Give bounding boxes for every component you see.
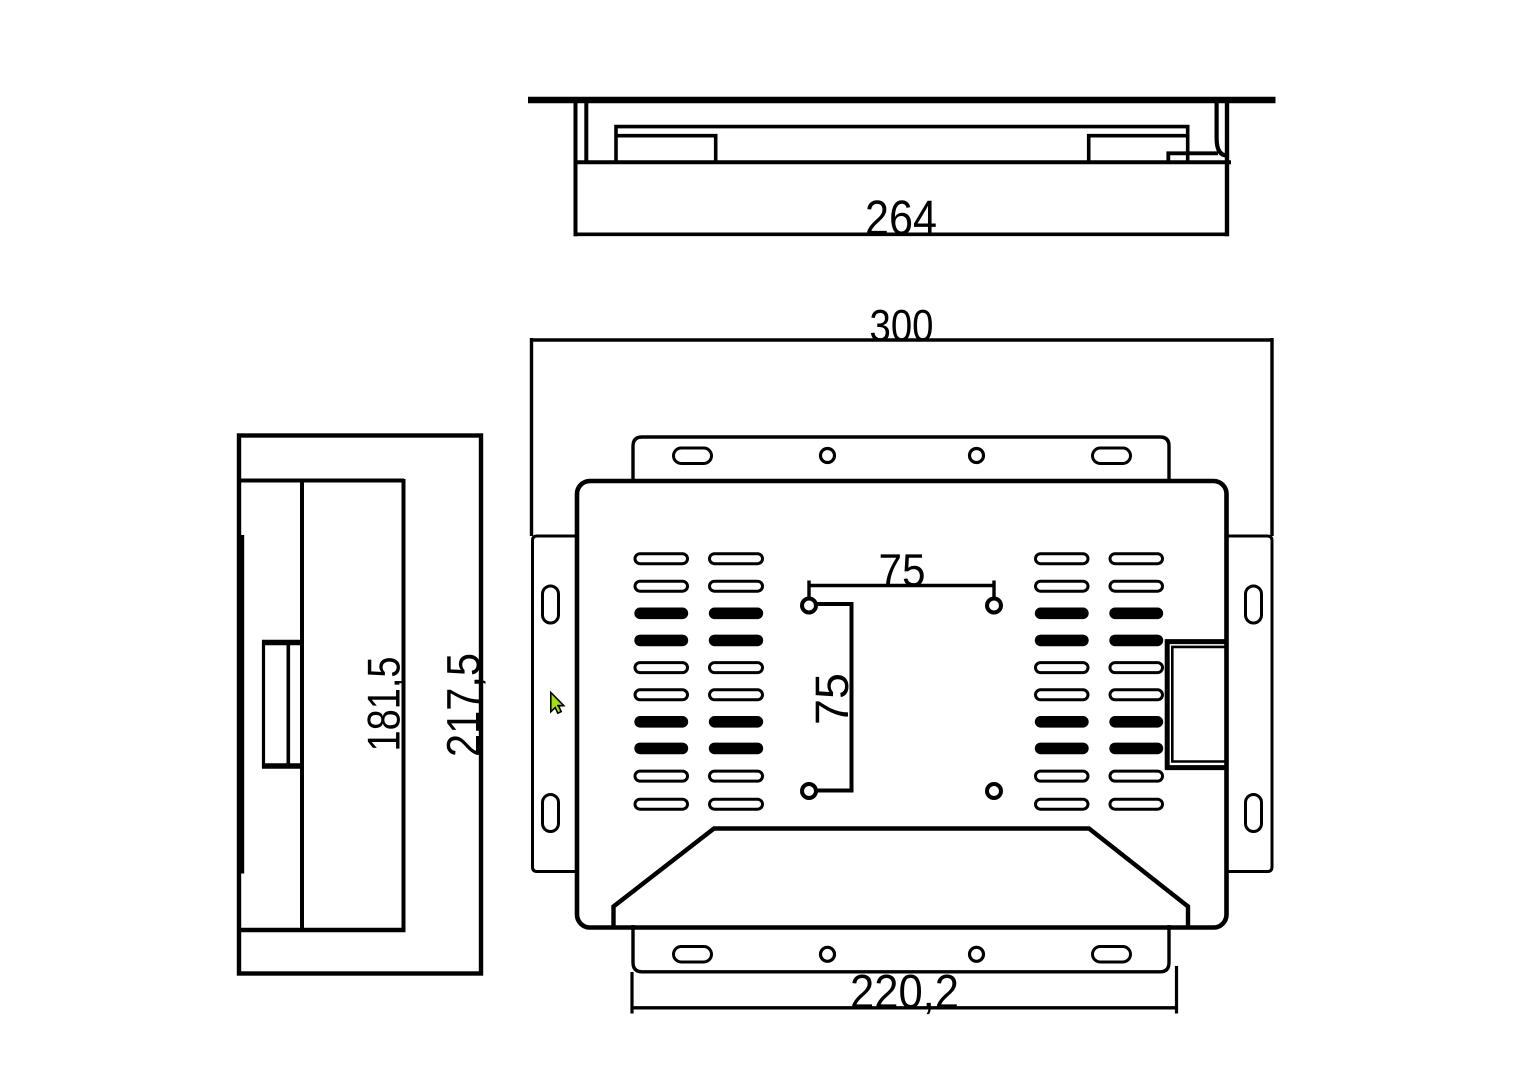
svg-text:217,5: 217,5 (437, 653, 490, 757)
svg-text:75: 75 (879, 544, 926, 596)
svg-text:75: 75 (805, 673, 858, 725)
svg-text:181,5: 181,5 (358, 657, 410, 752)
svg-text:264: 264 (865, 192, 937, 246)
svg-text:220,2: 220,2 (850, 966, 959, 1019)
svg-text:300: 300 (870, 300, 934, 351)
